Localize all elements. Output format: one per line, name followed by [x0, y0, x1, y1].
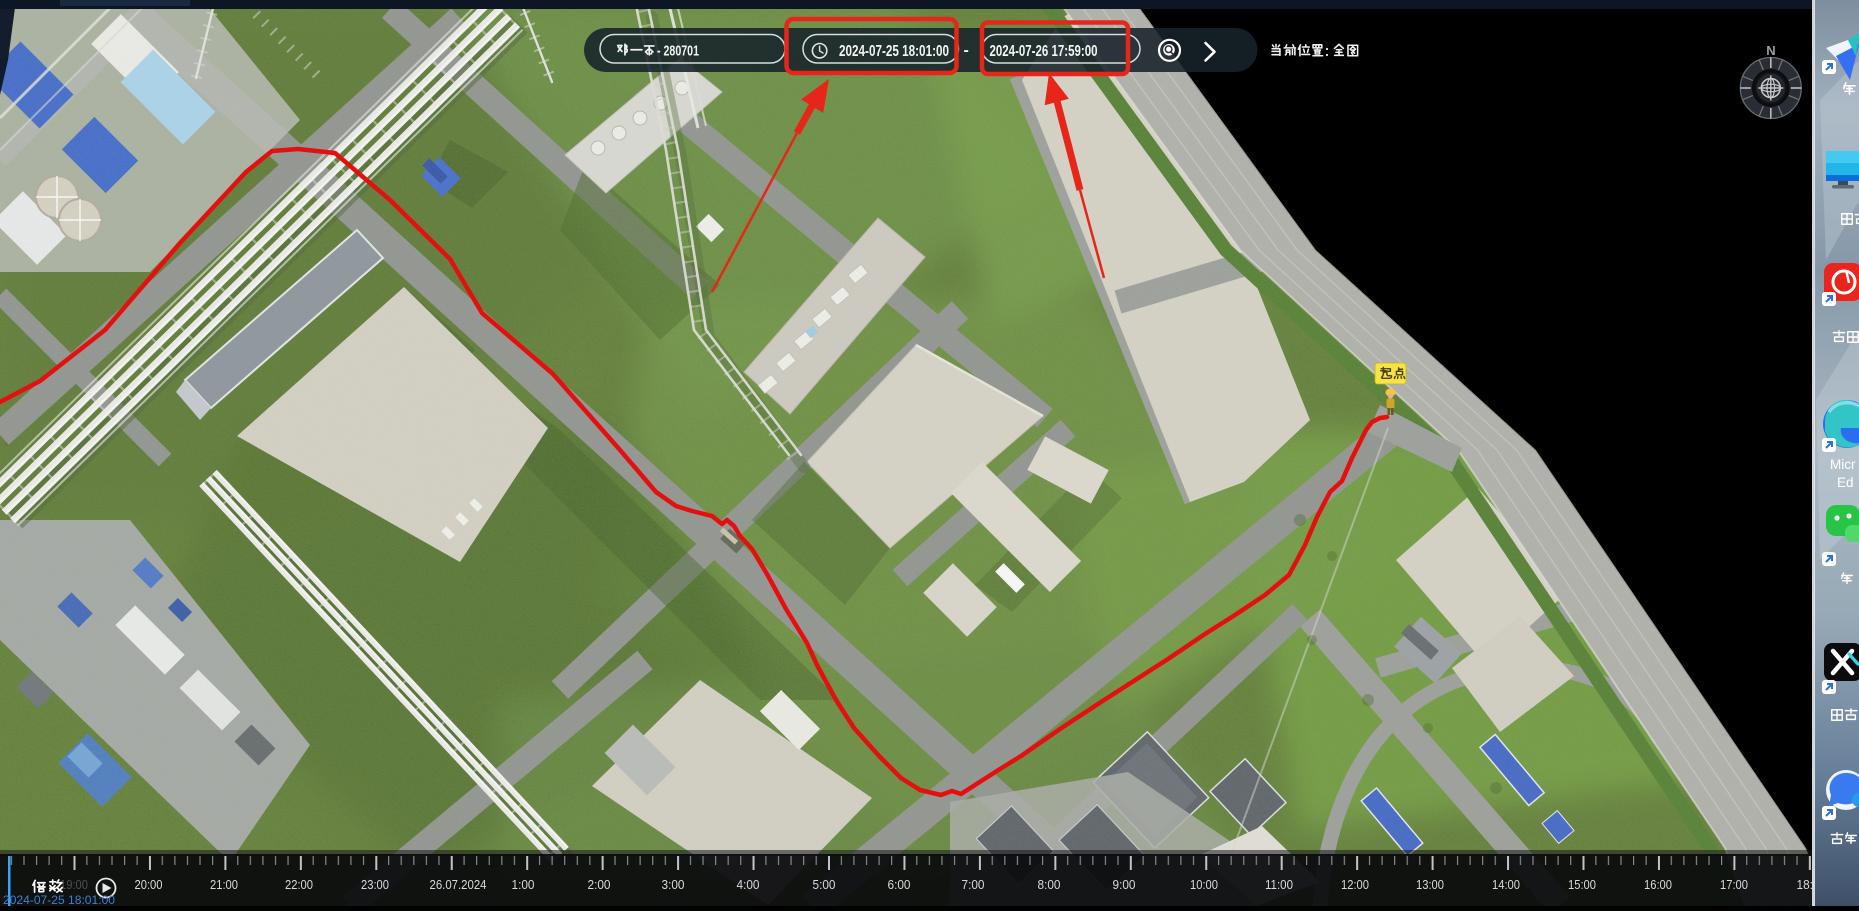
svg-text:- 280701: - 280701 [657, 43, 699, 60]
svg-text:26.07.2024: 26.07.2024 [430, 878, 487, 892]
svg-text:16:00: 16:00 [1644, 878, 1672, 892]
svg-text:N: N [1766, 43, 1775, 58]
svg-text:2024-07-26 17:59:00: 2024-07-26 17:59:00 [990, 43, 1098, 60]
svg-text:1:00: 1:00 [512, 878, 535, 892]
svg-text:23:00: 23:00 [361, 878, 389, 892]
svg-text:10:00: 10:00 [1190, 878, 1218, 892]
svg-text:Micr: Micr [1830, 457, 1856, 472]
svg-text:5:00: 5:00 [813, 878, 836, 892]
svg-text:12:00: 12:00 [1341, 878, 1369, 892]
svg-text:15:00: 15:00 [1568, 878, 1596, 892]
svg-text:13:00: 13:00 [1416, 878, 1444, 892]
svg-text:2024-07-25 18:01:00: 2024-07-25 18:01:00 [839, 43, 949, 60]
svg-text:-: - [964, 42, 969, 59]
svg-text:2:00: 2:00 [588, 878, 611, 892]
svg-text:6:00: 6:00 [888, 878, 911, 892]
svg-text:11:00: 11:00 [1265, 878, 1293, 892]
svg-text:7:00: 7:00 [962, 878, 985, 892]
svg-text:14:00: 14:00 [1492, 878, 1520, 892]
svg-text:9:00: 9:00 [1113, 878, 1136, 892]
svg-text:3:00: 3:00 [662, 878, 685, 892]
svg-text:Ed: Ed [1837, 475, 1854, 490]
svg-text:2024-07-25 18:01:00: 2024-07-25 18:01:00 [3, 895, 115, 906]
svg-text:4:00: 4:00 [737, 878, 760, 892]
svg-text:22:00: 22:00 [285, 878, 313, 892]
svg-text:17:00: 17:00 [1720, 878, 1748, 892]
svg-text:21:00: 21:00 [210, 878, 238, 892]
svg-text:8:00: 8:00 [1038, 878, 1061, 892]
svg-text:19:00: 19:00 [60, 878, 88, 892]
svg-text:20:00: 20:00 [135, 878, 163, 892]
